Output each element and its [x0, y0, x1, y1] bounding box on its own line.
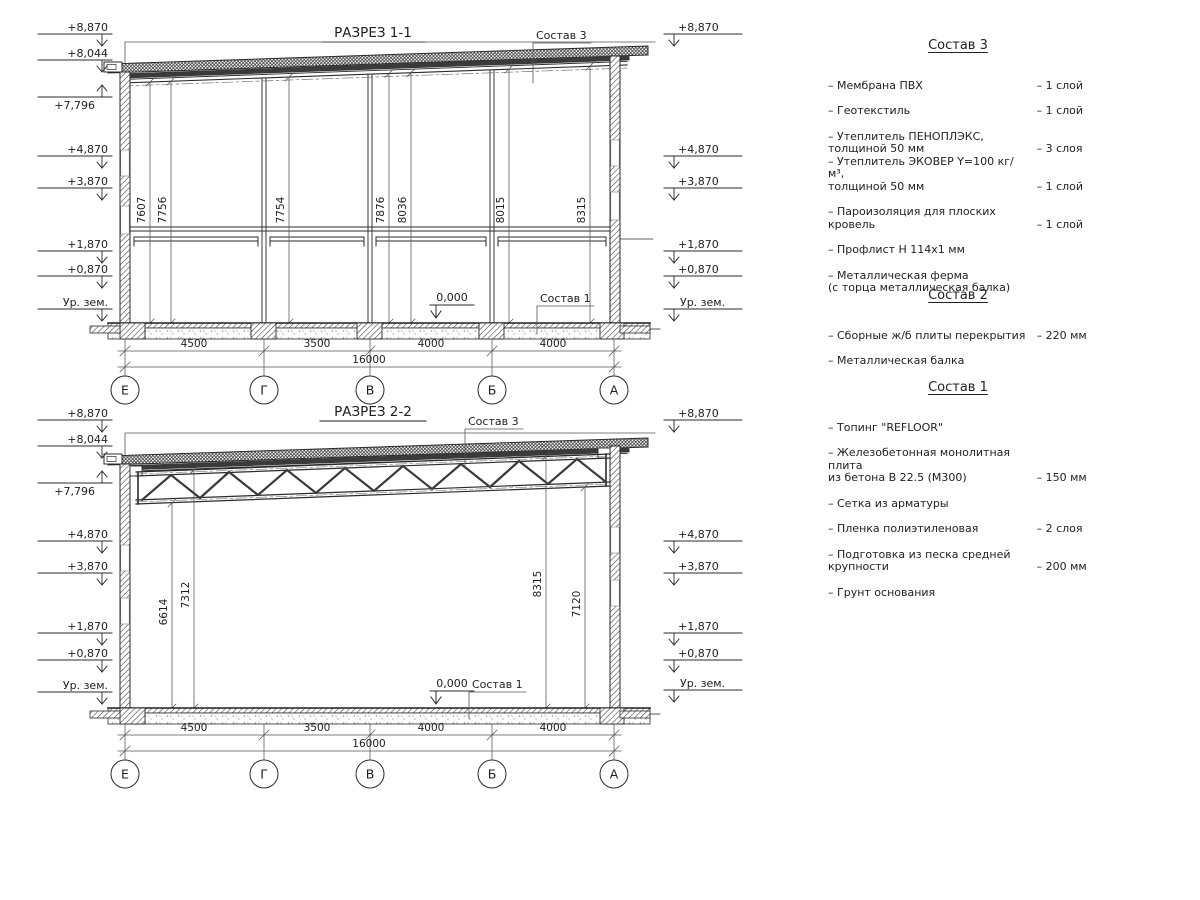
material-qty: – 200 мм [1037, 561, 1118, 574]
elevation-marks-right: +8,870 +4,870 +3,870 +1,870 +0,870 Ур. з… [664, 407, 742, 702]
steel-beam [134, 237, 258, 246]
footing-pad [120, 323, 145, 339]
material-qty: – 1 слой [1037, 80, 1118, 93]
right-wall [610, 56, 620, 323]
material-name: – Металлическая балка [828, 355, 1029, 368]
vdim-label: 7607 [136, 197, 148, 224]
legend-title: Состав 2 [828, 290, 1088, 303]
level-label: Ур. зем. [63, 296, 108, 309]
span-dim: 4000 [540, 722, 567, 734]
footing-pad [251, 323, 276, 339]
legend-item: – Пароизоляция для плоских кровель – 1 с… [828, 206, 1118, 231]
level-label: +8,870 [678, 407, 719, 420]
zero-level-mark: 0,000 [430, 291, 474, 318]
axis-bubbles: Е Г В Б А [111, 760, 628, 788]
floor-ref-label: Состав 1 [540, 292, 591, 305]
level-label: +4,870 [678, 143, 719, 156]
zero-level-label: 0,000 [436, 291, 468, 304]
footing-pad [479, 323, 504, 339]
legend-item: – Сетка из арматуры [828, 498, 1118, 511]
level-label: +0,870 [678, 263, 719, 276]
level-label: +0,870 [67, 647, 108, 660]
axis-bubbles: Е Г В Б А [111, 376, 628, 404]
vdim-label: 6614 [158, 598, 170, 625]
material-name: – Сборные ж/б плиты перекрытия [828, 330, 1029, 343]
level-label: +3,870 [678, 175, 719, 188]
material-name: – Геотекстиль [828, 105, 1029, 118]
material-qty: – 1 слой [1037, 181, 1118, 194]
material-qty: – 1 слой [1037, 105, 1118, 118]
level-label: Ур. зем. [680, 677, 725, 690]
level-label: +0,870 [67, 263, 108, 276]
vdim-label: 7312 [180, 582, 192, 609]
material-name: – Грунт основания [828, 587, 1029, 600]
level-label: Ур. зем. [680, 296, 725, 309]
legend-item: – Металлическая балка [828, 355, 1118, 368]
legend-item: – Мембрана ПВХ – 1 слой [828, 80, 1118, 93]
level-label: +3,870 [678, 560, 719, 573]
level-label: +0,870 [678, 647, 719, 660]
edge-strip-right [620, 326, 650, 333]
columns [262, 70, 494, 323]
material-name: – Пленка полиэтиленовая [828, 523, 1029, 536]
level-label: +7,796 [54, 99, 95, 112]
material-name: – Подготовка из песка средней крупности [828, 549, 1029, 574]
steel-beam [270, 237, 364, 246]
material-name: – Топинг "REFLOOR" [828, 422, 1029, 435]
vdim-label: 8036 [397, 196, 409, 223]
edge-strip-left [90, 326, 120, 333]
zero-level-label: 0,000 [436, 677, 468, 690]
walls [120, 56, 620, 323]
level-label: +8,870 [67, 407, 108, 420]
precast-slab [130, 227, 610, 231]
level-label: +8,870 [678, 21, 719, 34]
left-wall-joint [121, 598, 129, 624]
legend-title: Состав 3 [828, 40, 1088, 53]
edge-strip-left [90, 711, 120, 718]
left-wall-joint [121, 206, 129, 234]
total-dim: 16000 [352, 354, 385, 366]
legend-item: – Грунт основания [828, 587, 1118, 600]
legend-sostav-2: Состав 2 – Сборные ж/б плиты перекрытия … [828, 290, 1118, 381]
axis-label: В [366, 383, 375, 398]
legend-item: – Подготовка из песка средней крупности … [828, 549, 1118, 574]
truss-bearing-left [130, 466, 142, 476]
material-name: – Утеплитель ПЕНОПЛЭКС, толщиной 50 мм [828, 131, 1029, 156]
elevation-marks-left: +8,870 +8,044 +7,796 +4,870 +3,870 +1,87… [38, 21, 112, 321]
material-name: – Сетка из арматуры [828, 498, 1029, 511]
legend-item: – Топинг "REFLOOR" [828, 422, 1118, 435]
roof-ref-label: Состав 3 [468, 415, 519, 428]
right-wall [610, 446, 620, 708]
axis-label: В [366, 767, 375, 782]
axis-label: А [610, 383, 619, 398]
axis-label: Г [260, 767, 268, 782]
legend-item: – Сборные ж/б плиты перекрытия – 220 мм [828, 330, 1118, 343]
left-wall-joint [121, 150, 129, 176]
span-dim: 4500 [181, 338, 208, 350]
floor-slab [90, 323, 660, 339]
legend-title: Состав 1 [828, 382, 1088, 395]
level-label: +7,796 [54, 485, 95, 498]
right-wall-joint [611, 192, 619, 220]
vdim-label: 7876 [375, 196, 387, 223]
level-label: +4,870 [67, 528, 108, 541]
level-label: +3,870 [67, 560, 108, 573]
span-dim: 4000 [418, 722, 445, 734]
section-2-2: РАЗРЕЗ 2-2 [38, 404, 742, 788]
legend-sostav-1: Состав 1 – Топинг "REFLOOR" – Железобето… [828, 382, 1118, 612]
roof-package [104, 46, 648, 86]
horizontal-dims: 4500 3500 4000 4000 16000 [118, 722, 621, 760]
vdim-label: 7756 [157, 196, 169, 223]
right-wall-joint [611, 527, 619, 553]
material-name: – Профлист Н 114х1 мм [828, 244, 1029, 257]
left-wall [120, 464, 130, 708]
material-name: – Утеплитель ЭКОВЕР Y=100 кг/м³, толщино… [828, 156, 1029, 194]
roof-ref-label: Состав 3 [536, 29, 587, 42]
horizontal-dims: 4500 3500 4000 4000 16000 [118, 338, 621, 376]
span-dim: 3500 [304, 338, 331, 350]
floor-ref-label: Состав 1 [472, 678, 523, 691]
legend-item: – Геотекстиль – 1 слой [828, 105, 1118, 118]
legend-sostav-3: Состав 3 – Мембрана ПВХ – 1 слой – Геоте… [828, 40, 1118, 308]
material-name: – Пароизоляция для плоских кровель [828, 206, 1029, 231]
legend-item: – Утеплитель ЭКОВЕР Y=100 кг/м³, толщино… [828, 156, 1118, 194]
vdim-label: 8315 [532, 571, 544, 598]
level-label: +4,870 [67, 143, 108, 156]
edge-strip-right [620, 711, 650, 718]
walls [120, 446, 620, 708]
level-label: +8,044 [67, 47, 108, 60]
elevation-marks-left: +8,870 +8,044 +7,796 +4,870 +3,870 +1,87… [38, 407, 112, 704]
material-qty: – 220 мм [1037, 330, 1118, 343]
floor-slab [90, 708, 660, 724]
axis-label: Е [121, 767, 129, 782]
roof-ref-leader: Состав 3 [465, 415, 523, 468]
right-wall-joint [611, 140, 619, 166]
left-wall [120, 72, 130, 323]
axis-label: Б [488, 767, 497, 782]
total-dim: 16000 [352, 738, 385, 750]
material-qty: – 2 слоя [1037, 523, 1118, 536]
vdim-label: 7120 [571, 591, 583, 618]
vdim-label: 8315 [576, 197, 588, 224]
axis-label: Г [260, 383, 268, 398]
material-name: – Железобетонная монолитная плита из бет… [828, 447, 1029, 485]
footing-pad [120, 708, 145, 724]
steel-beam [376, 237, 486, 246]
axis-label: Е [121, 383, 129, 398]
material-name: – Мембрана ПВХ [828, 80, 1029, 93]
material-qty: – 150 мм [1037, 472, 1118, 485]
mid-slab-and-beams [130, 227, 653, 246]
material-qty: – 1 слой [1037, 219, 1118, 232]
section2-title: РАЗРЕЗ 2-2 [334, 404, 412, 420]
footing-pad [357, 323, 382, 339]
level-label: +8,044 [67, 433, 108, 446]
axis-label: А [610, 767, 619, 782]
span-dim: 3500 [304, 722, 331, 734]
level-label: +1,870 [678, 238, 719, 251]
legend-item: – Профлист Н 114х1 мм [828, 244, 1118, 257]
legend-item: – Пленка полиэтиленовая – 2 слоя [828, 523, 1118, 536]
vdim-label: 8015 [495, 197, 507, 224]
level-label: +1,870 [67, 620, 108, 633]
sections-drawing: РАЗРЕЗ 1-1 [0, 0, 780, 810]
level-label: +1,870 [678, 620, 719, 633]
section-1-1: РАЗРЕЗ 1-1 [38, 21, 742, 404]
vertical-dims: 7607 7756 7754 7876 8036 8015 8315 [136, 62, 594, 327]
span-dim: 4000 [540, 338, 567, 350]
legend-item: – Утеплитель ПЕНОПЛЭКС, толщиной 50 мм –… [828, 131, 1118, 156]
legend-item: – Железобетонная монолитная плита из бет… [828, 447, 1118, 485]
level-label: +4,870 [678, 528, 719, 541]
vdim-label: 7754 [275, 196, 287, 223]
left-wall-joint [121, 545, 129, 571]
section1-title: РАЗРЕЗ 1-1 [334, 25, 412, 41]
axis-label: Б [488, 383, 497, 398]
span-dim: 4000 [418, 338, 445, 350]
level-label: +8,870 [67, 21, 108, 34]
level-label: +1,870 [67, 238, 108, 251]
level-label: Ур. зем. [63, 679, 108, 692]
right-wall-joint [611, 580, 619, 606]
zero-level-mark: 0,000 [430, 677, 474, 704]
level-label: +3,870 [67, 175, 108, 188]
drawing-sheet: РАЗРЕЗ 1-1 [0, 0, 1200, 900]
material-qty: – 3 слоя [1037, 143, 1118, 156]
elevation-marks-right: +8,870 +4,870 +3,870 +1,870 +0,870 Ур. з… [664, 21, 742, 321]
span-dim: 4500 [181, 722, 208, 734]
